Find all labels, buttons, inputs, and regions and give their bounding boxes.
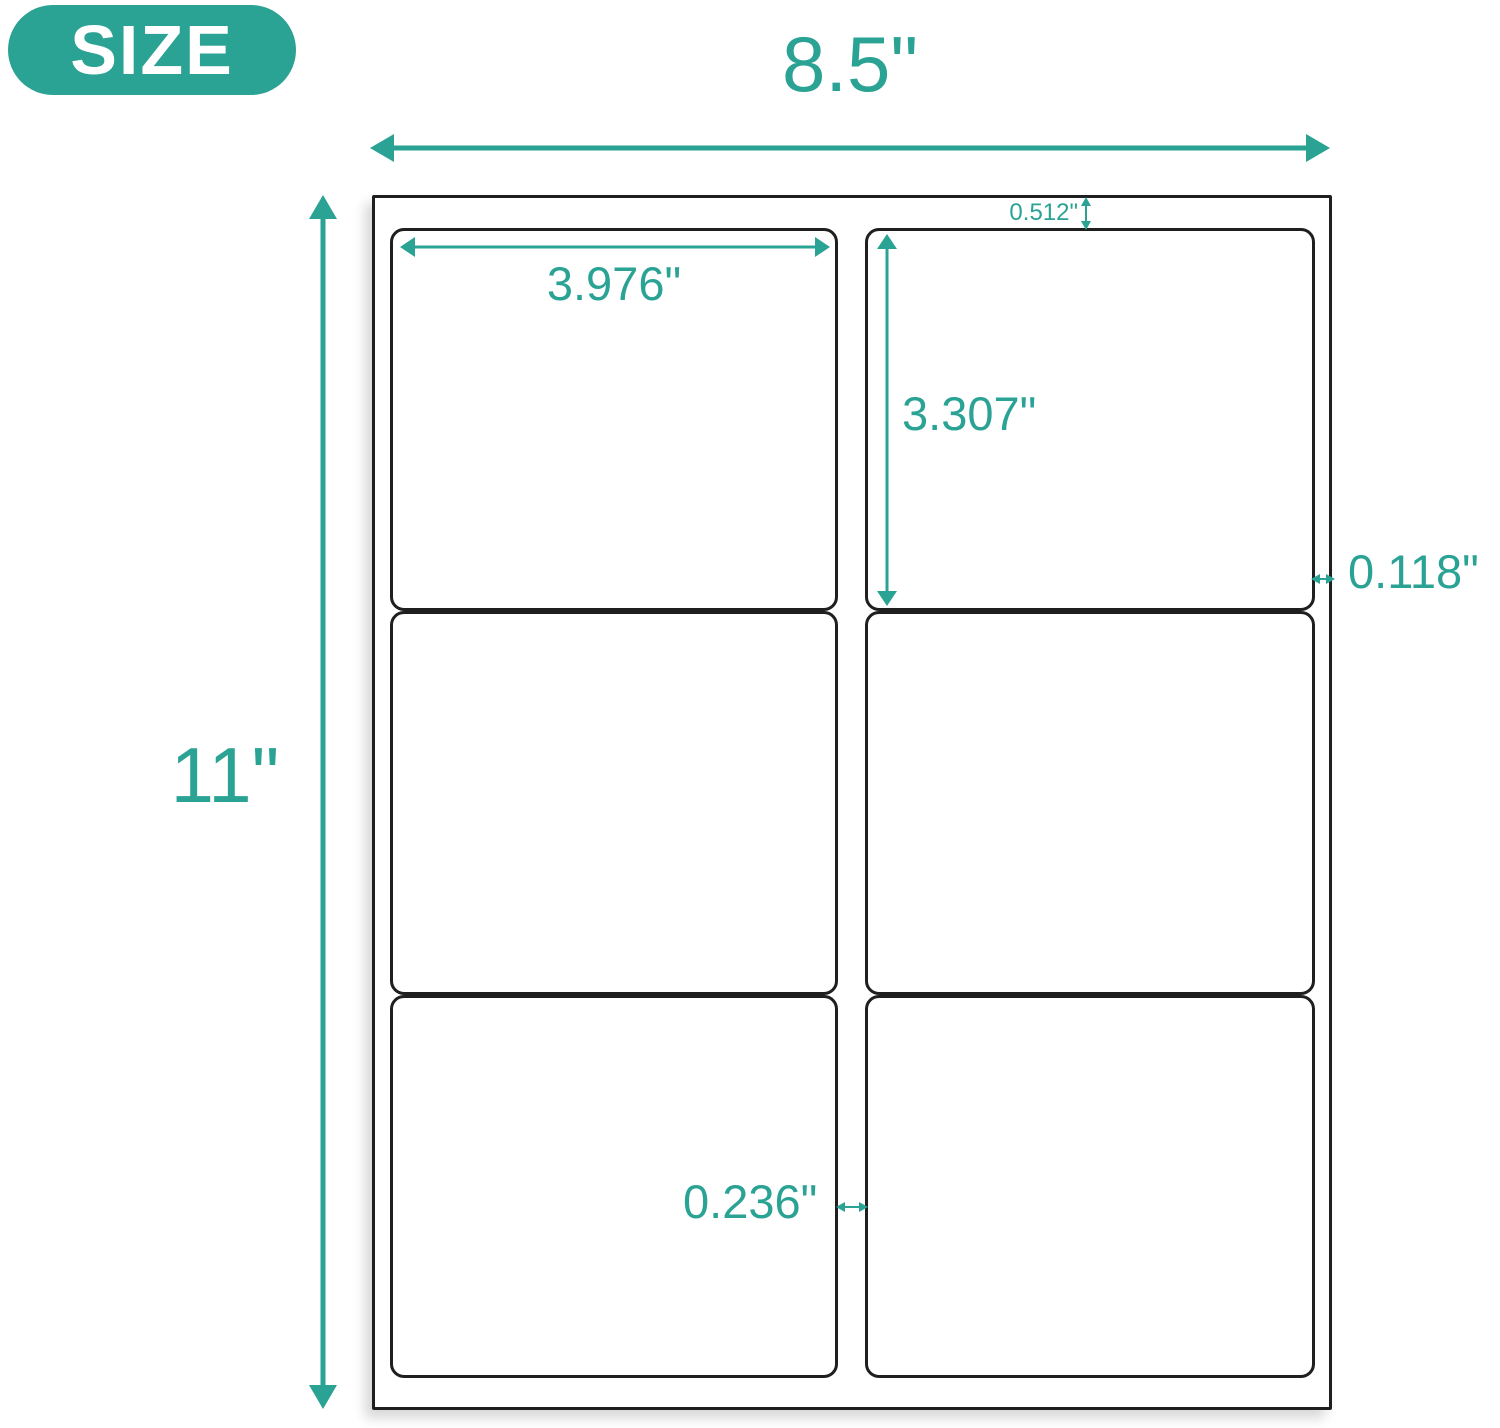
arrow-line — [413, 246, 817, 249]
size-diagram: SIZE 8.5" 11" 3.976" 3.307" 0.512" — [0, 0, 1500, 1428]
label-cell — [865, 995, 1315, 1378]
sheet-height-arrow — [303, 195, 343, 1409]
top-margin-arrow — [1078, 197, 1094, 230]
arrowhead-left-icon — [370, 134, 394, 162]
sheet-width-value: 8.5" — [370, 22, 1330, 108]
arrow-line — [392, 146, 1308, 151]
arrowhead-up-icon — [309, 195, 337, 219]
label-height-value: 3.307" — [902, 388, 1036, 440]
size-badge-label: SIZE — [70, 10, 234, 90]
side-margin-value: 0.118" — [1348, 546, 1479, 598]
arrowhead-down-icon — [1081, 221, 1091, 230]
arrow-line — [886, 247, 889, 593]
arrowhead-down-icon — [877, 591, 897, 606]
arrowhead-right-icon — [859, 1202, 868, 1212]
arrowhead-right-icon — [1326, 574, 1335, 584]
label-height-arrow — [872, 234, 902, 606]
sheet-width-arrow — [370, 128, 1330, 168]
label-width-value: 3.976" — [390, 258, 838, 310]
arrowhead-right-icon — [815, 237, 830, 257]
arrow-line — [321, 217, 326, 1387]
label-sheet — [372, 195, 1332, 1410]
size-badge: SIZE — [8, 5, 296, 95]
label-cell — [390, 611, 838, 995]
arrowhead-right-icon — [1306, 134, 1330, 162]
label-cell — [865, 611, 1315, 995]
arrowhead-down-icon — [309, 1385, 337, 1409]
side-margin-arrow — [1311, 571, 1335, 587]
top-margin-value: 0.512" — [940, 200, 1078, 226]
column-gap-value: 0.236" — [683, 1176, 817, 1228]
column-gap-arrow — [836, 1199, 868, 1215]
sheet-height-value: 11" — [140, 733, 310, 819]
